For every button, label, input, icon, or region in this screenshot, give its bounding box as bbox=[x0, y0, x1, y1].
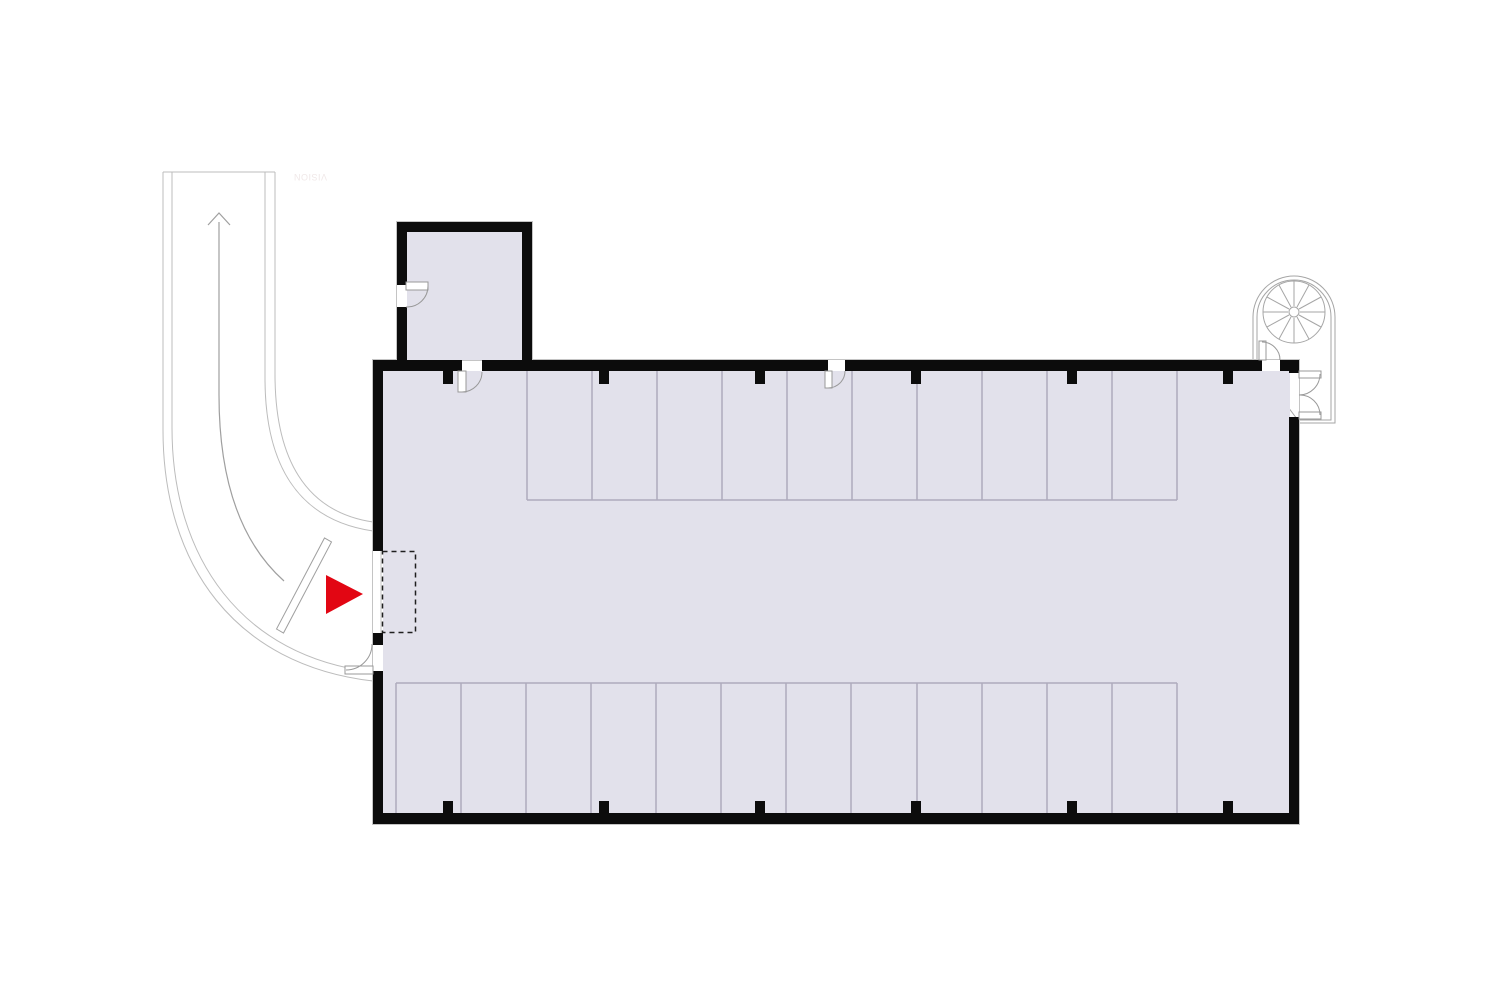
garage-floor bbox=[383, 371, 1290, 814]
spiral-stair-newel bbox=[1289, 307, 1299, 317]
annex-wall-left-segment-2 bbox=[397, 307, 407, 360]
wall-left-segment-1 bbox=[373, 360, 383, 551]
annex-floor bbox=[407, 232, 522, 360]
wall-top-segment-3 bbox=[845, 360, 1262, 371]
wall-bottom bbox=[373, 813, 1299, 824]
annex-wall-left-segment-1 bbox=[397, 222, 407, 285]
annex-wall-right bbox=[522, 222, 532, 360]
wall-top-segment-2 bbox=[482, 360, 828, 371]
annex-door-leaf bbox=[406, 282, 428, 290]
entrance-marker[interactable] bbox=[326, 575, 363, 614]
driveway-centerline bbox=[219, 222, 284, 581]
floor-plan-svg bbox=[0, 0, 1500, 1000]
stair-access-door-leaf bbox=[1259, 341, 1266, 360]
wall-top-segment-1 bbox=[373, 360, 462, 371]
stair-double-door-top-leaf bbox=[1299, 371, 1321, 378]
driveway-inner-edge-1 bbox=[265, 172, 373, 531]
driveway-inner-edge-2 bbox=[275, 172, 373, 522]
wall-left-segment-3 bbox=[373, 671, 383, 813]
annex-wall-top bbox=[397, 222, 532, 232]
wall-right-segment-2 bbox=[1289, 417, 1299, 813]
floor-plan-canvas: VISION bbox=[0, 0, 1500, 1000]
barrier-arm bbox=[277, 538, 332, 633]
stair-double-door-bottom-leaf bbox=[1299, 412, 1321, 419]
top-wall-door-leaf bbox=[825, 371, 832, 388]
wall-right-segment-1 bbox=[1289, 360, 1299, 373]
annex-garage-door-leaf bbox=[458, 371, 466, 392]
wall-left-segment-2 bbox=[373, 633, 383, 645]
